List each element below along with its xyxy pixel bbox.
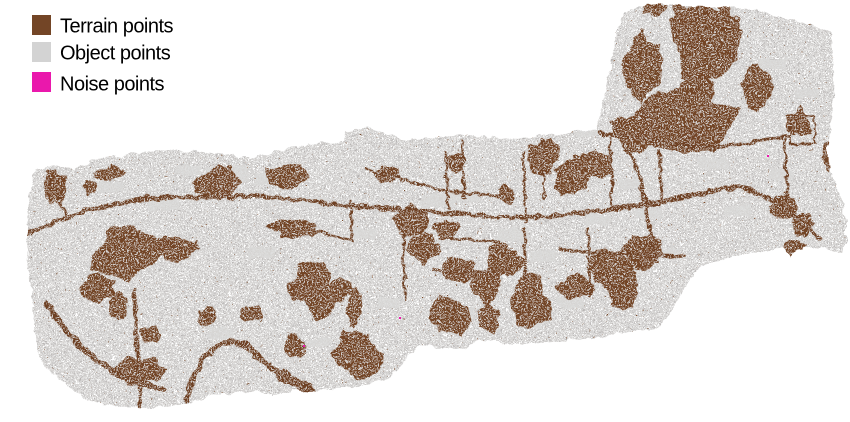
svg-text:Noise points: Noise points: [60, 74, 165, 96]
svg-text:Object points: Object points: [60, 43, 171, 65]
svg-text:Terrain points: Terrain points: [60, 16, 174, 38]
